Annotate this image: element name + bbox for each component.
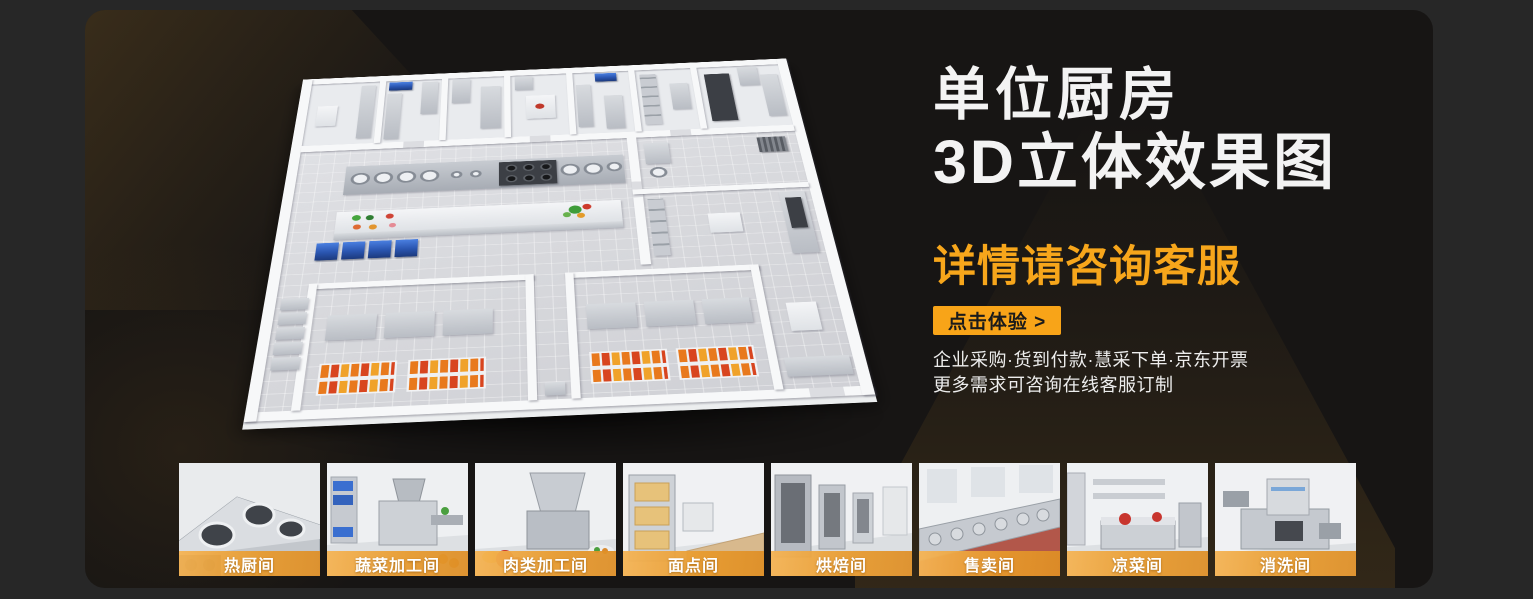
room-thumbnails: 热厨间 蔬菜加工间 <box>179 463 1356 576</box>
hero-note-line2: 更多需求可咨询在线客服订制 <box>933 373 1403 398</box>
thumbnail-serving-room[interactable]: 售卖间 <box>919 463 1060 576</box>
thumbnail-pastry-room[interactable]: 面点间 <box>623 463 764 576</box>
thumbnail-label: 售卖间 <box>919 551 1060 576</box>
thumbnail-label: 蔬菜加工间 <box>327 551 468 576</box>
thumbnail-vegetable-processing[interactable]: 蔬菜加工间 <box>327 463 468 576</box>
thumbnail-baking-room[interactable]: 烘焙间 <box>771 463 912 576</box>
banner: 单位厨房 3D立体效果图 详情请咨询客服 点击体验 > 企业采购·货到付款·慧采… <box>0 0 1533 599</box>
hero-title-line2: 3D立体效果图 <box>933 128 1403 196</box>
hero-note-line1: 企业采购·货到付款·慧采下单·京东开票 <box>933 348 1403 373</box>
thumbnail-meat-processing[interactable]: 肉类加工间 <box>475 463 616 576</box>
floorplan-bottom-rooms-equipment <box>244 58 876 422</box>
thumbnail-label: 消洗间 <box>1215 551 1356 576</box>
3d-kitchen-floorplan <box>244 58 876 422</box>
thumbnail-label: 烘焙间 <box>771 551 912 576</box>
thumbnail-hot-kitchen[interactable]: 热厨间 <box>179 463 320 576</box>
hero-subtitle: 详情请咨询客服 <box>933 242 1403 292</box>
cta-button[interactable]: 点击体验 > <box>933 306 1061 335</box>
banner-panel: 单位厨房 3D立体效果图 详情请咨询客服 点击体验 > 企业采购·货到付款·慧采… <box>85 10 1433 588</box>
thumbnail-label: 热厨间 <box>179 551 320 576</box>
hero-title-line1: 单位厨房 <box>933 62 1403 128</box>
thumbnail-label: 肉类加工间 <box>475 551 616 576</box>
thumbnail-label: 面点间 <box>623 551 764 576</box>
thumbnail-cold-dish-room[interactable]: 凉菜间 <box>1067 463 1208 576</box>
hero-copy: 单位厨房 3D立体效果图 详情请咨询客服 点击体验 > 企业采购·货到付款·慧采… <box>933 62 1403 398</box>
thumbnail-washing-room[interactable]: 消洗间 <box>1215 463 1356 576</box>
thumbnail-label: 凉菜间 <box>1067 551 1208 576</box>
